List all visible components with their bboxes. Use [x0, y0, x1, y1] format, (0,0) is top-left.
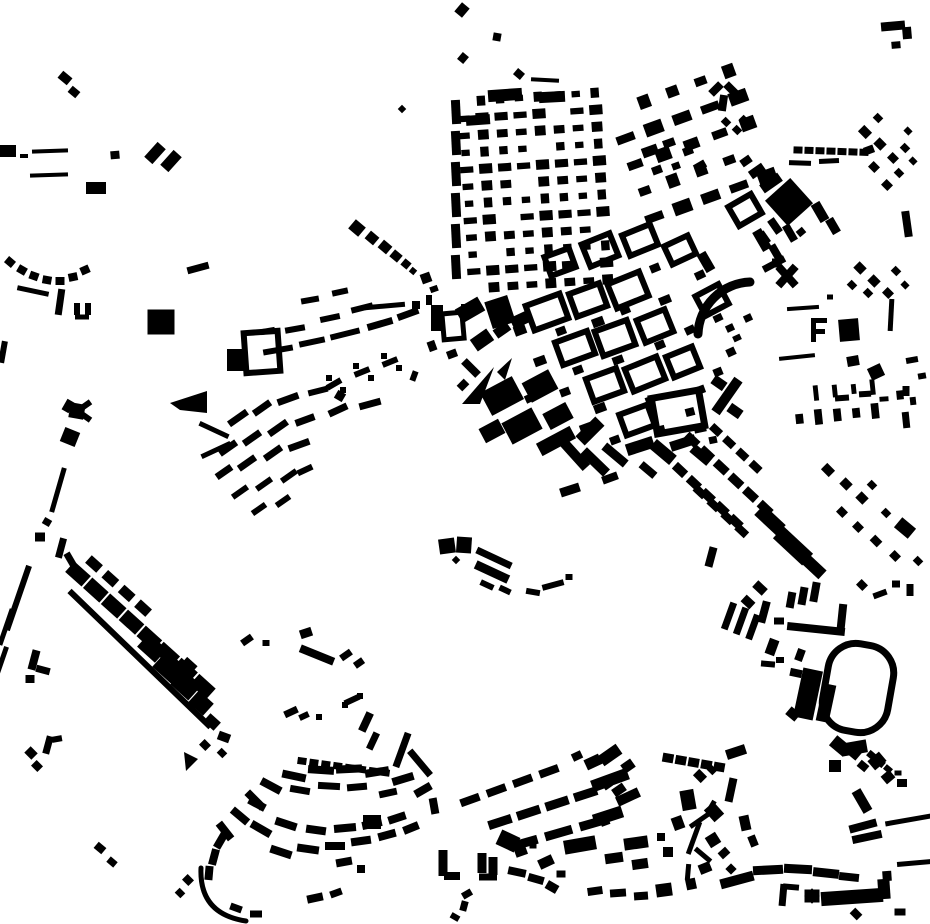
grid-building — [592, 155, 606, 166]
grid-building — [513, 111, 527, 118]
grid-building — [476, 95, 485, 105]
grid-building — [459, 132, 470, 139]
grid-building — [506, 248, 515, 257]
grid-building — [580, 226, 591, 233]
grid-building — [517, 162, 531, 169]
grid-building — [534, 125, 545, 136]
building — [478, 853, 487, 873]
building — [539, 91, 566, 103]
grid-building — [542, 227, 553, 238]
grid-building — [814, 409, 823, 425]
building — [357, 693, 363, 699]
grid-building — [591, 121, 602, 132]
grid-building — [602, 274, 613, 285]
grid-building — [505, 264, 519, 273]
building — [363, 815, 381, 829]
building — [910, 397, 917, 406]
grid-building — [870, 403, 879, 419]
building — [74, 303, 80, 315]
grid-building — [596, 206, 610, 217]
row-building — [451, 224, 461, 248]
grid-building — [600, 257, 614, 268]
grid-building — [484, 197, 493, 207]
grid-building — [590, 87, 599, 97]
building — [903, 386, 910, 396]
grid-building — [526, 281, 537, 288]
building — [657, 833, 665, 841]
grid-building — [536, 159, 550, 170]
building — [325, 842, 345, 850]
building — [318, 782, 340, 790]
building — [148, 310, 175, 335]
grid-building — [478, 129, 489, 140]
building — [438, 537, 456, 554]
building — [895, 771, 902, 776]
grid-building — [553, 125, 564, 134]
building — [557, 871, 566, 878]
building — [86, 182, 106, 194]
grid-building — [552, 91, 561, 100]
row-building — [321, 760, 331, 768]
grid-building — [524, 264, 538, 271]
grid-building — [574, 158, 588, 165]
grid-building — [516, 128, 527, 135]
grid-building — [582, 243, 591, 250]
grid-building — [576, 175, 587, 182]
figure-ground-map — [0, 0, 930, 924]
building — [492, 32, 501, 41]
grid-building — [481, 180, 492, 191]
building — [655, 882, 673, 897]
building — [75, 315, 89, 320]
grid-building — [522, 196, 531, 203]
building — [776, 657, 784, 663]
grid-building — [543, 261, 557, 272]
grid-building — [504, 231, 515, 240]
building — [895, 909, 906, 916]
building — [761, 660, 775, 667]
building — [110, 151, 120, 160]
building — [357, 865, 365, 873]
grid-building — [485, 231, 496, 242]
grid-building — [488, 282, 499, 293]
grid-building — [572, 124, 583, 131]
building — [456, 536, 472, 553]
building — [204, 866, 213, 881]
building — [368, 375, 374, 381]
row-building — [451, 193, 461, 217]
grid-building — [466, 234, 477, 241]
grid-building — [540, 193, 549, 203]
grid-building — [570, 107, 584, 114]
grid-building — [456, 115, 470, 122]
building — [753, 865, 783, 876]
building — [396, 365, 402, 371]
building — [859, 391, 871, 398]
grid-building — [462, 183, 473, 190]
grid-building — [539, 210, 553, 221]
building — [444, 872, 460, 880]
row-building — [345, 764, 355, 772]
row-building — [451, 255, 461, 279]
row-building — [356, 765, 366, 773]
figure-ground-map-page — [0, 0, 930, 924]
grid-building — [558, 210, 572, 219]
grid-building — [475, 112, 489, 123]
grid-building — [523, 230, 534, 237]
grid-building — [597, 189, 606, 199]
building — [892, 581, 900, 588]
building — [0, 145, 16, 157]
grid-building — [562, 260, 576, 269]
grid-building — [495, 95, 504, 104]
building — [610, 888, 627, 897]
row-building — [826, 147, 835, 154]
grid-building — [564, 278, 575, 287]
grid-building — [479, 163, 493, 174]
building — [838, 318, 860, 342]
row-building — [804, 147, 813, 154]
row-building — [297, 757, 307, 765]
row-building — [380, 769, 390, 777]
building — [479, 874, 497, 881]
building — [877, 879, 890, 900]
grid-building — [514, 95, 523, 102]
grid-building — [480, 146, 489, 156]
building — [827, 295, 833, 300]
grid-building — [852, 408, 861, 419]
grid-building — [545, 278, 556, 289]
building — [342, 702, 348, 708]
building — [829, 760, 841, 772]
grid-building — [583, 277, 594, 284]
grid-building — [520, 213, 534, 220]
building — [634, 892, 649, 901]
grid-building — [594, 138, 603, 148]
building — [250, 911, 262, 918]
grid-building — [500, 180, 511, 189]
grid-building — [494, 112, 508, 121]
building — [879, 396, 888, 402]
grid-building — [532, 108, 546, 119]
building — [891, 41, 901, 49]
building — [381, 353, 387, 359]
building — [426, 295, 432, 305]
grid-building — [463, 217, 477, 224]
grid-building — [467, 268, 481, 275]
building — [263, 640, 270, 646]
grid-building — [486, 265, 500, 276]
building — [896, 390, 904, 400]
building — [489, 857, 498, 875]
building — [907, 584, 914, 596]
grid-building — [595, 172, 606, 183]
grid-building — [795, 414, 804, 425]
grid-building — [563, 244, 572, 253]
building — [26, 675, 35, 683]
grid-building — [559, 193, 568, 202]
building — [902, 27, 912, 40]
row-building — [309, 759, 319, 767]
building — [882, 871, 892, 882]
grid-building — [468, 251, 477, 258]
building — [819, 158, 839, 164]
building — [789, 160, 811, 166]
grid-building — [498, 163, 512, 172]
grid-building — [482, 214, 496, 225]
row-building — [675, 755, 687, 766]
row-building — [815, 147, 824, 154]
grid-building — [575, 141, 584, 148]
grid-building — [465, 200, 474, 207]
building — [897, 779, 907, 787]
grid-building — [507, 281, 518, 290]
grid-building — [538, 176, 549, 187]
building — [85, 303, 91, 315]
grid-building — [589, 104, 603, 115]
grid-building — [833, 408, 842, 421]
building — [566, 574, 573, 580]
grid-building — [499, 146, 508, 155]
grid-building — [503, 197, 512, 206]
grid-building — [533, 91, 542, 101]
grid-building — [557, 176, 568, 185]
building — [20, 154, 28, 158]
row-building — [333, 762, 343, 770]
building — [663, 847, 673, 857]
building — [846, 355, 860, 367]
building — [42, 275, 52, 284]
row-building — [848, 148, 857, 155]
row-building — [662, 753, 674, 764]
row-building — [859, 149, 868, 156]
row-building — [713, 762, 725, 773]
building — [353, 363, 359, 369]
building — [316, 714, 322, 720]
building — [56, 277, 65, 285]
building — [412, 301, 420, 309]
row-building — [837, 148, 846, 155]
grid-building — [571, 91, 580, 98]
grid-building — [544, 244, 553, 254]
building — [774, 618, 784, 625]
row-building — [793, 146, 802, 153]
grid-building — [556, 142, 565, 151]
grid-building — [518, 145, 527, 152]
row-building — [368, 767, 378, 775]
grid-building — [577, 209, 591, 216]
building — [35, 533, 45, 542]
grid-building — [497, 129, 508, 138]
building — [784, 864, 812, 874]
grid-building — [525, 247, 534, 254]
grid-building — [578, 192, 587, 199]
grid-building — [555, 159, 569, 168]
grid-building — [460, 166, 474, 173]
grid-building — [461, 149, 470, 156]
row-building — [700, 759, 712, 770]
row-building — [451, 162, 461, 186]
grid-building — [601, 240, 610, 250]
building — [772, 259, 780, 268]
grid-building — [561, 227, 572, 236]
row-building — [687, 757, 699, 768]
grid-building — [851, 384, 857, 394]
building — [326, 375, 332, 381]
